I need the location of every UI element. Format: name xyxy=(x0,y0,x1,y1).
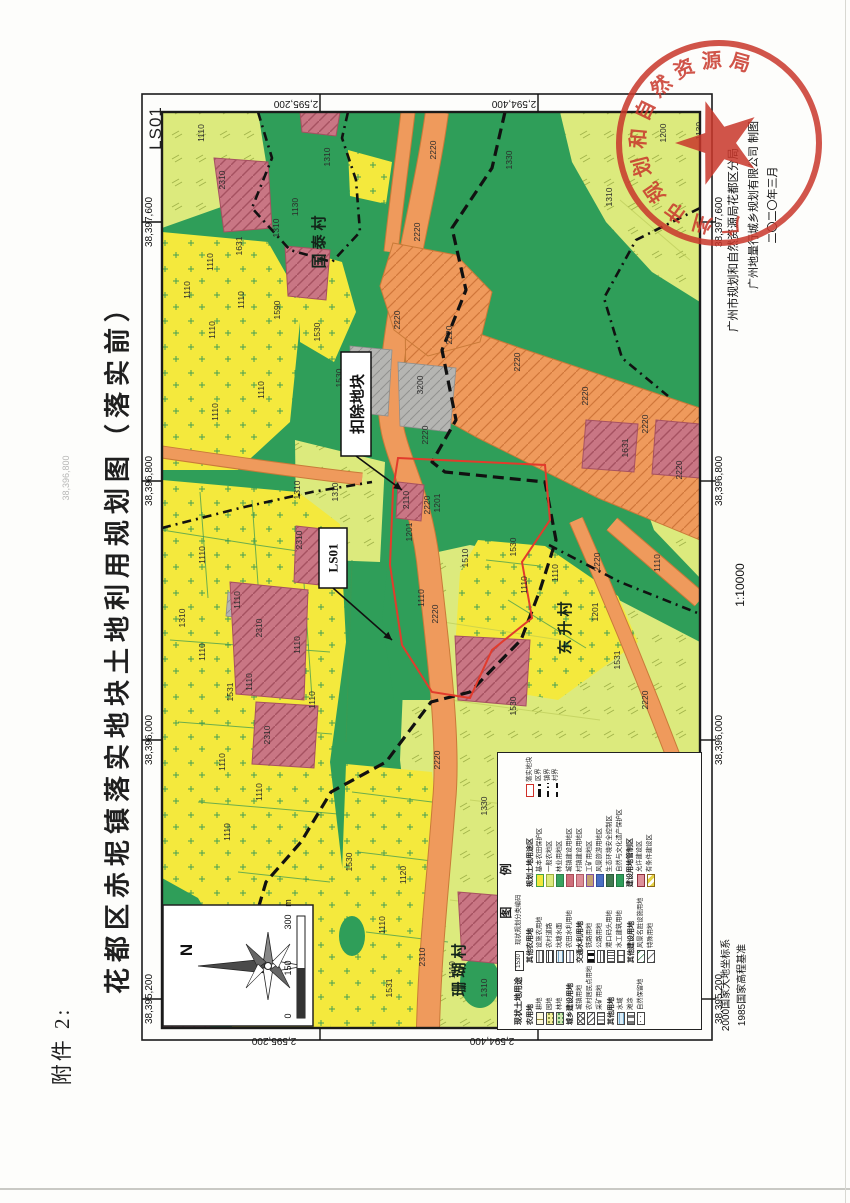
legend-swatch-icon xyxy=(536,950,544,963)
land-use-code-label: 1110 xyxy=(307,691,317,709)
legend-item: 农田水利用地 xyxy=(566,898,574,963)
elevation-datum-label: 1985国家高程基准 xyxy=(735,944,748,1026)
legend-item-label: 自然保留地 xyxy=(638,979,645,1010)
land-use-code-label: 1110 xyxy=(256,381,266,399)
land-use-code-label: 2310 xyxy=(294,530,304,549)
legend-swatch-icon xyxy=(627,1012,635,1025)
legend-item: 设施农用地 xyxy=(536,898,544,963)
northing-coordinate-label: 2,595,200 xyxy=(251,1035,296,1046)
land-use-code-label: 1110 xyxy=(205,253,215,271)
legend-item-label: 林业用地区 xyxy=(557,841,564,872)
land-use-code-label: 1110 xyxy=(652,554,662,572)
northing-coordinate-label: 2,594,400 xyxy=(491,98,536,109)
land-use-code-label: 1110 xyxy=(377,916,387,934)
legend-item: 有条件建设区 xyxy=(647,809,655,887)
legend-item: 园地 xyxy=(546,966,554,1025)
legend-swatch-icon xyxy=(556,1012,564,1025)
land-use-code-label: 1310 xyxy=(322,147,332,166)
legend-group-header: 其他用地 xyxy=(608,966,615,1025)
legend-item-label: 水工建筑用地 xyxy=(617,910,624,948)
land-use-code-label: 1531 xyxy=(384,978,394,997)
legend-item-label: 生态环境安全控制区 xyxy=(607,815,614,872)
legend-item: 村镇建设用地区 xyxy=(576,809,584,887)
village-name-label: 珊瑚村 xyxy=(450,939,468,996)
legend-swatch-icon xyxy=(637,1012,645,1025)
easting-coordinate-label: 38,396,000 xyxy=(714,715,725,765)
land-use-code-label: 1200 xyxy=(658,123,668,142)
legend-item: 落实地块 xyxy=(526,757,534,797)
legend-swatch-icon xyxy=(546,1012,554,1025)
land-use-code-label: 1110 xyxy=(292,636,302,654)
land-use-code-label: 1530 xyxy=(312,322,322,341)
land-use-code-label: 2220 xyxy=(428,140,438,159)
legend-item: 城镇用地 xyxy=(577,966,585,1025)
scalebar-label: 0 xyxy=(283,1013,293,1018)
forest-patch xyxy=(339,916,365,956)
legend-swatch-icon xyxy=(637,874,645,887)
land-use-code-label: 2220 xyxy=(592,552,602,571)
land-use-code-label: 2220 xyxy=(444,325,454,344)
legend-item-label: 一般农地区 xyxy=(547,841,554,872)
legend-item: 林业用地区 xyxy=(556,809,564,887)
legend-item-label: 村界 xyxy=(553,768,560,781)
legend-item: 城镇建设用地区 xyxy=(566,809,574,887)
land-use-code-label: 2220 xyxy=(674,460,684,479)
land-use-code-label: 1530 xyxy=(508,537,518,556)
village-name-label: 东升村 xyxy=(556,597,574,654)
land-use-code-label: 2220 xyxy=(580,386,590,405)
legend-item-label: 镇界 xyxy=(545,768,552,781)
land-use-code-label: 1110 xyxy=(196,124,206,142)
land-use-code-label: 1530 xyxy=(344,852,354,871)
legend-group-header: 规划土地用途区 xyxy=(527,809,534,887)
legend-code-sample: 1530 xyxy=(515,951,524,971)
land-use-code-label: 1310 xyxy=(292,480,302,499)
legend-item: 耕地 xyxy=(536,966,544,1025)
legend-swatch-icon xyxy=(587,1012,595,1025)
land-use-code-label: 1310 xyxy=(330,482,340,501)
land-use-code-label: 1110 xyxy=(182,281,192,299)
callout-text: LS01 xyxy=(326,544,341,573)
legend-item-label: 坑塘水面 xyxy=(557,923,564,948)
legend-item: 村界 xyxy=(553,757,560,797)
legend-swatch-icon xyxy=(606,874,614,887)
legend-item: 生态环境安全控制区 xyxy=(606,809,614,887)
land-use-code-label: 1110 xyxy=(550,564,560,582)
legend-swatch-icon xyxy=(536,1012,544,1025)
legend-item-label: 水域 xyxy=(618,997,625,1010)
easting-coordinate-label: 38,396,000 xyxy=(144,715,155,765)
legend-swatch-icon xyxy=(587,950,595,963)
legend-swatch-icon xyxy=(647,874,655,887)
legend-swatch-icon xyxy=(586,874,594,887)
legend-item-label: 基本农田保护区 xyxy=(537,828,544,872)
land-use-code-label: 2220 xyxy=(640,414,650,433)
legend-swatch-icon xyxy=(556,783,558,797)
legend-item-label: 林地 xyxy=(557,997,564,1010)
legend-item: 水工建筑用地 xyxy=(617,898,625,963)
datum-label: 2000国家大地坐标系 xyxy=(719,939,732,1031)
land-use-code-label: 2220 xyxy=(432,750,442,769)
land-use-code-label: 1310 xyxy=(479,978,489,997)
legend-item-label: 允许建设区 xyxy=(637,841,644,872)
legend-swatch-icon xyxy=(566,874,574,887)
settlement-region xyxy=(300,112,340,136)
attachment-label: 附件 2: xyxy=(46,1007,76,1086)
legend-item-label: 耕地 xyxy=(537,997,544,1010)
land-use-code-label: 1201 xyxy=(432,493,442,512)
legend-item: 一般农地区 xyxy=(546,809,554,887)
scalebar-label: m xyxy=(283,899,293,907)
legend-item: 自然与文化遗产保护区 xyxy=(616,809,624,887)
credit-company-label: 广州地量行城乡规划有限公司 制图 xyxy=(746,121,760,289)
legend-group-header: 其他建设用地 xyxy=(628,898,635,963)
legend-item-label: 农村居民点用地 xyxy=(587,966,594,1010)
legend-swatch-icon xyxy=(647,950,655,963)
easting-coordinate-label: 38,395,200 xyxy=(144,974,155,1024)
north-label: N xyxy=(177,944,196,956)
legend-item: 水域 xyxy=(617,966,625,1025)
legend-current-header: 现状土地用途 1530 现状规划分类编码 xyxy=(515,895,524,1025)
legend-column-planned-zones: 规划土地用途区基本农田保护区一般农地区林业用地区城镇建设用地区村镇建设用地区工矿… xyxy=(526,809,655,887)
easting-coordinate-label: 38,396,800 xyxy=(714,456,725,506)
land-use-code-label: 1110 xyxy=(254,783,264,801)
land-use-code-label: 2310 xyxy=(217,170,227,189)
legend-item-label: 风景旅游用地区 xyxy=(597,828,604,872)
legend-title: 图 例 xyxy=(500,753,513,1029)
land-use-code-label: 1110 xyxy=(197,643,207,661)
legend-item-label: 园地 xyxy=(547,997,554,1010)
easting-coordinate-label: 38,396,800 xyxy=(144,456,155,506)
legend-item-label: 采矿用地 xyxy=(597,985,604,1010)
legend-item-label: 农村道路 xyxy=(547,923,554,948)
legend-item-label: 滩涂 xyxy=(628,997,635,1010)
legend-item: 特殊用地 xyxy=(647,898,655,963)
land-use-code-label: 1110 xyxy=(197,546,207,564)
legend-item-label: 铁路用地 xyxy=(587,923,594,948)
legend-swatch-icon xyxy=(547,783,549,797)
ghost-coordinate-label: 38,396,800 xyxy=(61,455,71,500)
legend-column-agricultural: 农用地耕地园地林地城乡建设用地城镇用地农村居民点用地采矿用地其他用地水域滩涂自然… xyxy=(526,966,645,1025)
legend-box: 图 例 现状土地用途 1530 现状规划分类编码 农用地耕地园地林地城乡建设用地… xyxy=(497,752,702,1030)
land-use-code-label: 1110 xyxy=(207,321,217,339)
land-use-code-label: 1330 xyxy=(479,796,489,815)
scalebar-label: 150 xyxy=(283,960,293,975)
legend-current-title: 现状土地用途 xyxy=(515,977,523,1025)
legend-item-label: 设施农用地 xyxy=(537,917,544,948)
legend-swatch-icon xyxy=(576,874,584,887)
land-use-code-label: 3200 xyxy=(415,375,425,394)
legend-swatch-icon xyxy=(637,950,645,963)
land-use-code-label: 2310 xyxy=(262,725,272,744)
land-use-code-label: 1130 xyxy=(290,198,300,217)
land-use-code-label: 1310 xyxy=(271,218,281,237)
land-use-code-label: 1120 xyxy=(398,866,408,885)
land-use-code-label: 2220 xyxy=(640,690,650,709)
land-use-code-label: 1110 xyxy=(236,291,246,309)
scale-ratio-label: 1:10000 xyxy=(733,563,747,607)
legend-group-header: 城乡建设用地 xyxy=(567,966,574,1025)
legend-item-label: 区界 xyxy=(536,768,543,781)
legend-swatch-icon xyxy=(526,784,534,797)
land-use-code-label: 1110 xyxy=(210,403,220,421)
compass-hub xyxy=(265,963,272,970)
legend-item-label: 城镇建设用地区 xyxy=(567,828,574,872)
scalebar-label: 300 xyxy=(283,914,293,929)
legend-item: 农村居民点用地 xyxy=(587,966,595,1025)
land-use-code-label: 1531 xyxy=(612,650,622,669)
land-use-code-label: 1631 xyxy=(620,438,630,457)
page-title: 花都区赤坭镇落实地块土地利用规划图（落实前） xyxy=(98,290,135,994)
legend-item: 工矿用地区 xyxy=(586,809,594,887)
legend-item: 采矿用地 xyxy=(597,966,605,1025)
legend-item-label: 风景名胜设施用地 xyxy=(638,898,645,948)
legend-item: 农村道路 xyxy=(546,898,554,963)
legend-swatch-icon xyxy=(617,950,625,963)
land-use-code-label: 1110 xyxy=(217,753,227,771)
land-use-code-label: 2220 xyxy=(392,310,402,329)
easting-coordinate-label: 38,397,600 xyxy=(144,197,155,247)
land-use-code-label: 1530 xyxy=(508,696,518,715)
legend-item-label: 农田水利用地 xyxy=(567,910,574,948)
legend-item: 林地 xyxy=(556,966,564,1025)
legend-group-header: 其他农用地 xyxy=(527,898,534,963)
legend-item: 风景名胜设施用地 xyxy=(637,898,645,963)
legend-swatch-icon xyxy=(556,874,564,887)
legend-group-header: 建设用地管制区 xyxy=(627,809,634,887)
legend-column-boundaries: 落实地块区界镇界村界 xyxy=(526,757,560,797)
legend-column-construction: 其他农用地设施农用地农村道路坑塘水面农田水利用地交通水利用地铁路用地公路用地港口… xyxy=(526,898,655,963)
legend-swatch-icon xyxy=(538,783,541,797)
legend-swatch-icon xyxy=(597,950,605,963)
scan-edge-line xyxy=(845,0,846,1203)
land-use-code-label: 2220 xyxy=(422,495,432,514)
legend-item-label: 特殊用地 xyxy=(648,923,655,948)
land-use-code-label: 2110 xyxy=(401,491,411,510)
callout-text: 扣除地块 xyxy=(348,373,366,434)
land-use-code-label: 1110 xyxy=(416,589,426,607)
legend-item: 风景旅游用地区 xyxy=(596,809,604,887)
land-use-code-label: 1590 xyxy=(272,300,282,319)
legend-swatch-icon xyxy=(546,950,554,963)
legend-item-label: 村镇建设用地区 xyxy=(577,828,584,872)
northing-coordinate-label: 2,594,400 xyxy=(469,1035,514,1046)
legend-swatch-icon xyxy=(607,950,615,963)
legend-item-label: 港口码头用地 xyxy=(607,910,614,948)
legend-swatch-icon xyxy=(546,874,554,887)
legend-item-label: 落实地块 xyxy=(527,757,534,782)
land-use-code-label: 1531 xyxy=(225,682,235,701)
legend-item-label: 城镇用地 xyxy=(577,985,584,1010)
legend-item-label: 公路用地 xyxy=(597,923,604,948)
land-use-code-label: 2220 xyxy=(420,425,430,444)
northing-coordinate-label: 2,595,200 xyxy=(273,98,318,109)
land-use-code-label: 1201 xyxy=(590,602,600,621)
village-name-label: 国泰村 xyxy=(310,211,328,268)
legend-item-label: 有条件建设区 xyxy=(647,834,654,872)
land-use-code-label: 1330 xyxy=(504,150,514,169)
land-use-code-label: 1310 xyxy=(177,608,187,627)
legend-swatch-icon xyxy=(556,950,564,963)
land-use-code-label: 1110 xyxy=(232,591,242,609)
legend-item-label: 工矿用地区 xyxy=(587,841,594,872)
land-use-code-label: 2310 xyxy=(417,947,427,966)
legend-item: 铁路用地 xyxy=(587,898,595,963)
legend-swatch-icon xyxy=(536,874,544,887)
scalebar-filled-half xyxy=(297,968,305,1018)
land-use-code-label: 1310 xyxy=(604,187,614,206)
legend-item: 允许建设区 xyxy=(637,809,645,887)
legend-swatch-icon xyxy=(577,1012,585,1025)
scan-artifact-line xyxy=(0,1188,850,1190)
legend-swatch-icon xyxy=(597,1012,605,1025)
legend-item: 镇界 xyxy=(545,757,552,797)
legend-item: 基本农田保护区 xyxy=(536,809,544,887)
legend-swatch-icon xyxy=(566,950,574,963)
land-use-code-label: 1110 xyxy=(222,823,232,841)
land-use-code-label: 2220 xyxy=(412,222,422,241)
legend-swatch-icon xyxy=(596,874,604,887)
land-use-code-label: 1201 xyxy=(404,522,414,541)
legend-item: 公路用地 xyxy=(597,898,605,963)
legend-swatch-icon xyxy=(617,1012,625,1025)
land-use-code-label: 1510 xyxy=(460,548,470,567)
land-use-code-label: 2220 xyxy=(430,604,440,623)
legend-item: 坑塘水面 xyxy=(556,898,564,963)
sheet-code-label: LS01 xyxy=(146,106,166,150)
legend-code-sample-label: 现状规划分类编码 xyxy=(516,895,523,945)
land-use-code-label: 2310 xyxy=(254,618,264,637)
legend-item: 区界 xyxy=(536,757,543,797)
land-use-code-label: 1110 xyxy=(519,576,529,594)
legend-group-header: 农用地 xyxy=(527,966,534,1025)
land-use-code-label: 1631 xyxy=(234,236,244,255)
land-use-code-label: 2220 xyxy=(512,352,522,371)
legend-swatch-icon xyxy=(616,874,624,887)
legend-item: 自然保留地 xyxy=(637,966,645,1025)
land-use-code-label: 1110 xyxy=(244,673,254,691)
legend-group-header: 交通水利用地 xyxy=(577,898,584,963)
legend-item: 港口码头用地 xyxy=(607,898,615,963)
legend-item: 滩涂 xyxy=(627,966,635,1025)
legend-item-label: 自然与文化遗产保护区 xyxy=(617,809,624,872)
scanned-map-page: 1200113013101330131022202220222022202220… xyxy=(0,0,850,1203)
